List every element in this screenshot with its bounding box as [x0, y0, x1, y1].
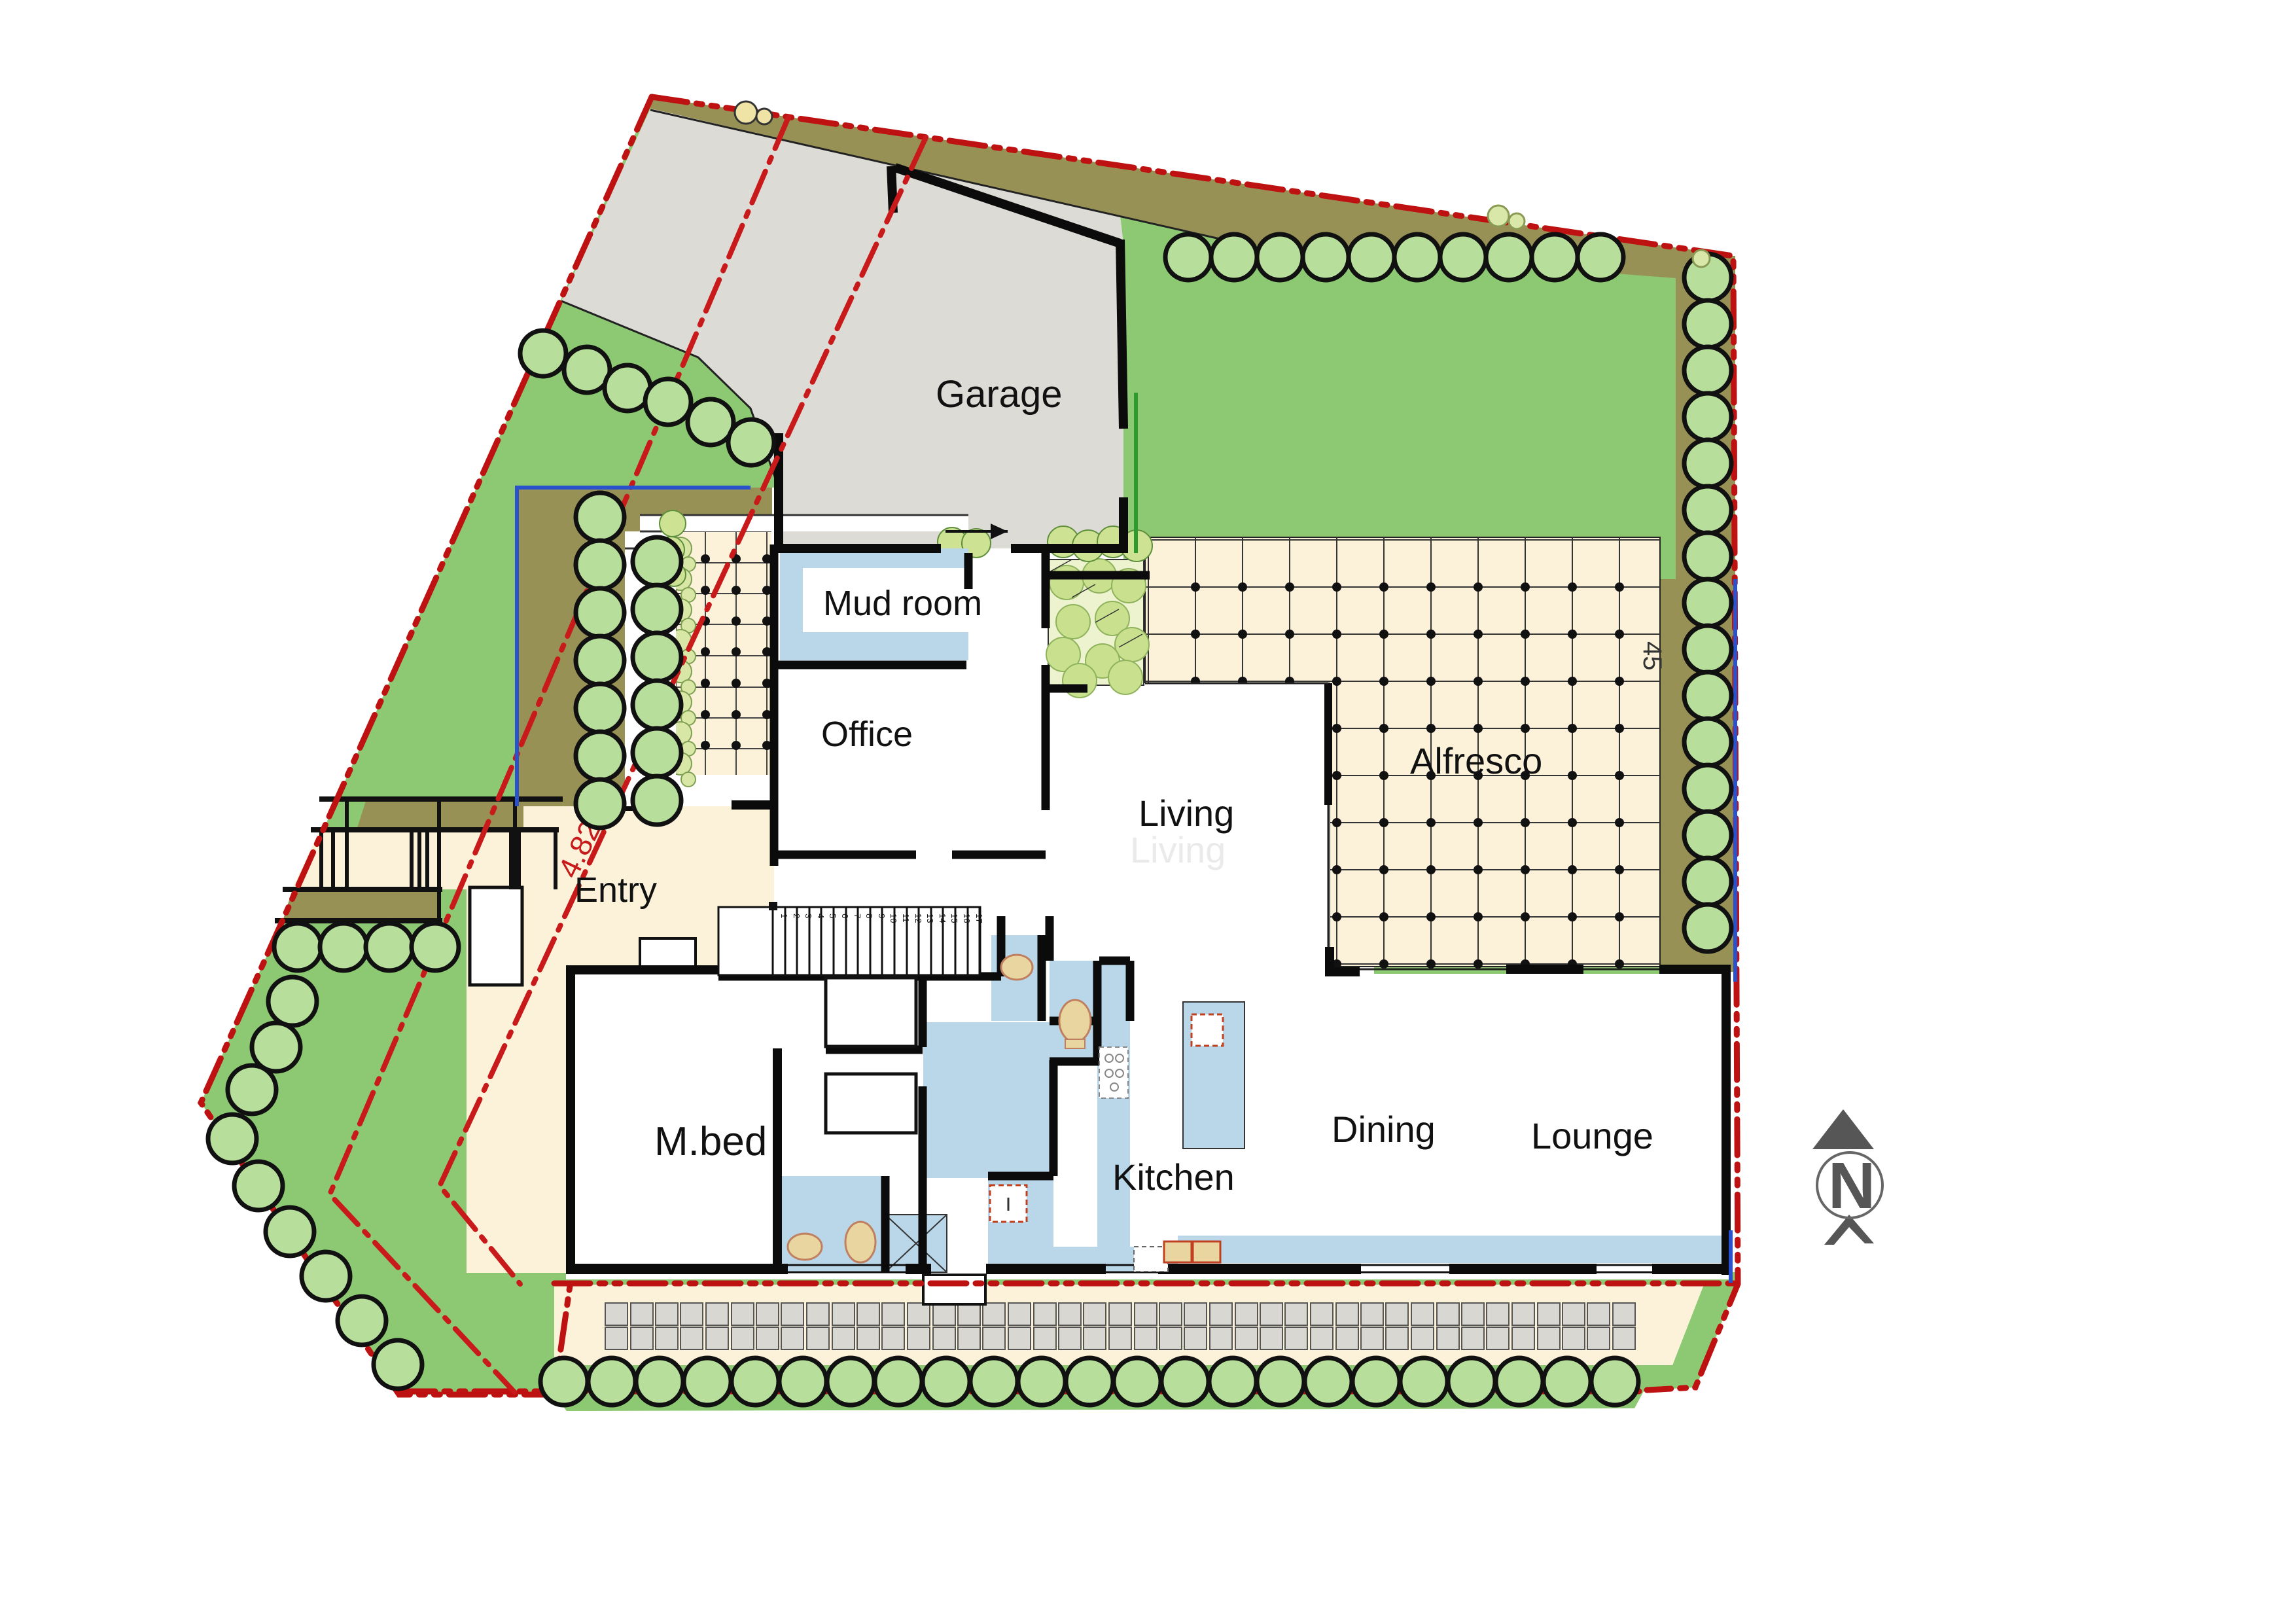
svg-text:Mud room: Mud room	[823, 584, 982, 623]
svg-text:16: 16	[962, 914, 972, 923]
svg-text:3: 3	[804, 914, 813, 918]
svg-text:Dining: Dining	[1332, 1109, 1436, 1150]
svg-text:2: 2	[792, 914, 802, 918]
svg-text:Entry: Entry	[574, 870, 657, 910]
svg-text:1: 1	[779, 914, 789, 918]
svg-text:Kitchen: Kitchen	[1112, 1156, 1235, 1198]
svg-text:Office: Office	[821, 715, 913, 754]
svg-text:Lounge: Lounge	[1531, 1115, 1653, 1156]
svg-text:15: 15	[949, 914, 959, 923]
svg-text:17: 17	[974, 914, 984, 923]
svg-text:Living: Living	[1130, 829, 1226, 870]
svg-text:8: 8	[864, 914, 874, 918]
svg-text:Living: Living	[1139, 793, 1234, 834]
svg-text:11: 11	[901, 914, 911, 923]
svg-text:14: 14	[938, 914, 947, 923]
svg-text:6: 6	[840, 914, 850, 918]
svg-text:12: 12	[913, 914, 923, 923]
svg-text:9: 9	[877, 914, 887, 918]
svg-text:Alfresco: Alfresco	[1410, 740, 1542, 781]
svg-text:7: 7	[853, 914, 862, 918]
svg-text:4: 4	[816, 914, 826, 918]
svg-text:N: N	[1828, 1149, 1875, 1222]
svg-text:M.bed: M.bed	[654, 1119, 767, 1164]
svg-text:5: 5	[828, 914, 838, 918]
svg-text:45: 45	[1638, 641, 1667, 671]
svg-text:Garage: Garage	[936, 373, 1062, 416]
svg-text:10: 10	[889, 914, 898, 923]
svg-text:13: 13	[925, 914, 935, 923]
